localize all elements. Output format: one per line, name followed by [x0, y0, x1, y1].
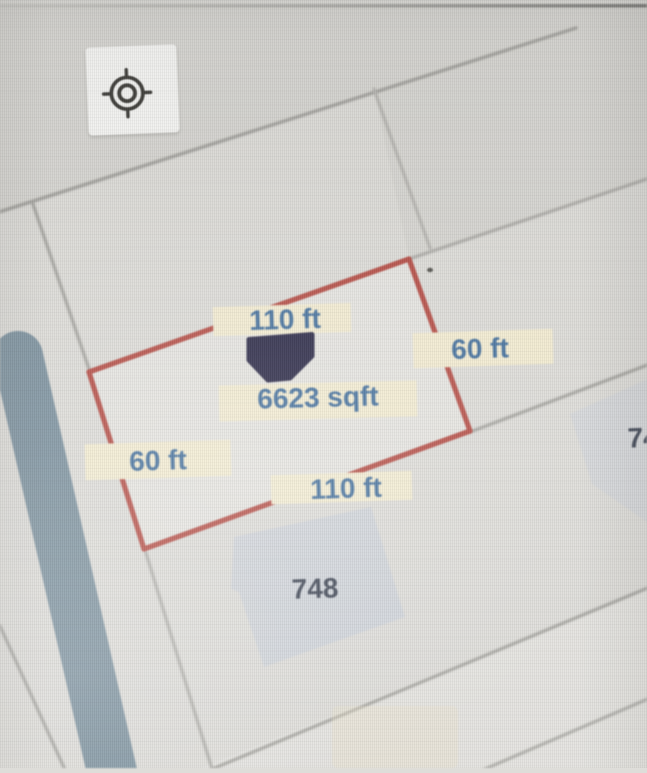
- svg-text:110 ft: 110 ft: [249, 303, 322, 336]
- svg-text:74: 74: [627, 422, 647, 454]
- svg-text:6623 sqft: 6623 sqft: [257, 380, 379, 414]
- svg-text:748: 748: [291, 572, 339, 605]
- svg-text:110 ft: 110 ft: [310, 472, 383, 505]
- svg-text:60 ft: 60 ft: [451, 332, 510, 365]
- svg-text:60 ft: 60 ft: [129, 444, 188, 477]
